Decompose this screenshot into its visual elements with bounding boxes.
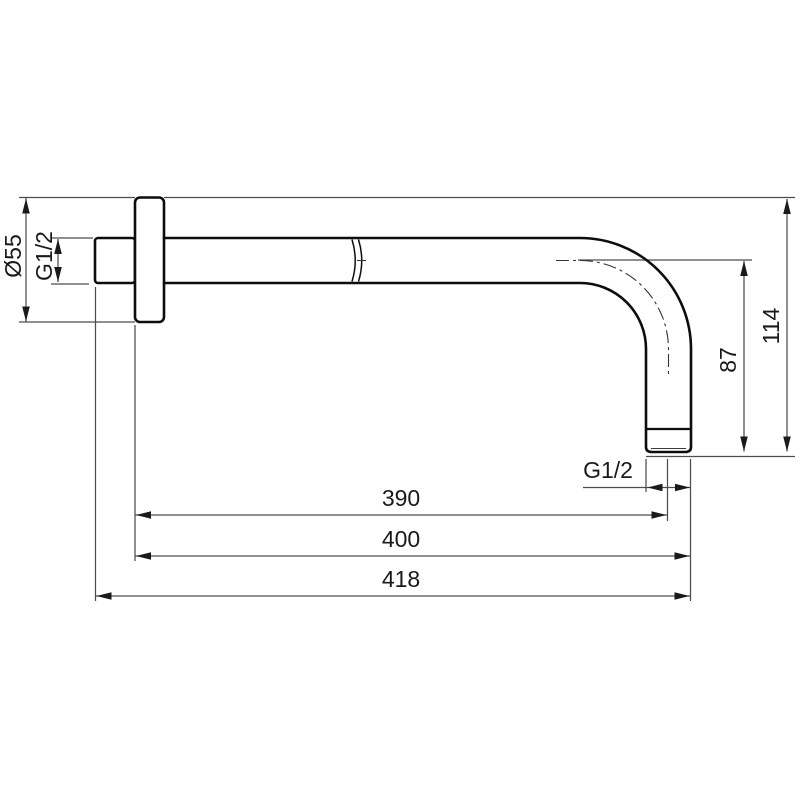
wall-thread-label: G1/2 <box>31 231 57 281</box>
dim-drop-overall: 114 <box>164 198 795 457</box>
dim-wall-thread: G1/2 <box>31 231 93 284</box>
flange-diameter-label: Ø55 <box>0 234 26 277</box>
technical-drawing-page: Ø55 G1/2 87 114 <box>0 0 800 800</box>
wall-thread-stub <box>95 238 135 283</box>
dim-length-overall: 418 <box>96 287 691 601</box>
shower-arm-part <box>95 198 691 453</box>
length-overall-label: 418 <box>382 566 420 592</box>
length-to-outlet-centerline-label: 390 <box>382 485 420 511</box>
drop-overall-label: 114 <box>758 307 784 344</box>
outlet-thread-label: G1/2 <box>583 457 633 483</box>
arm-tube-outline <box>164 238 691 452</box>
dim-length-wall-to-outlet: 400 <box>135 325 690 561</box>
drop-to-centerline-label: 87 <box>715 347 741 373</box>
dim-outlet-thread: G1/2 <box>583 457 691 492</box>
wall-flange <box>135 198 164 323</box>
length-wall-to-outlet-label: 400 <box>382 526 420 552</box>
shower-arm-drawing-canvas: Ø55 G1/2 87 114 <box>0 0 800 800</box>
tube-centerline <box>556 261 669 375</box>
